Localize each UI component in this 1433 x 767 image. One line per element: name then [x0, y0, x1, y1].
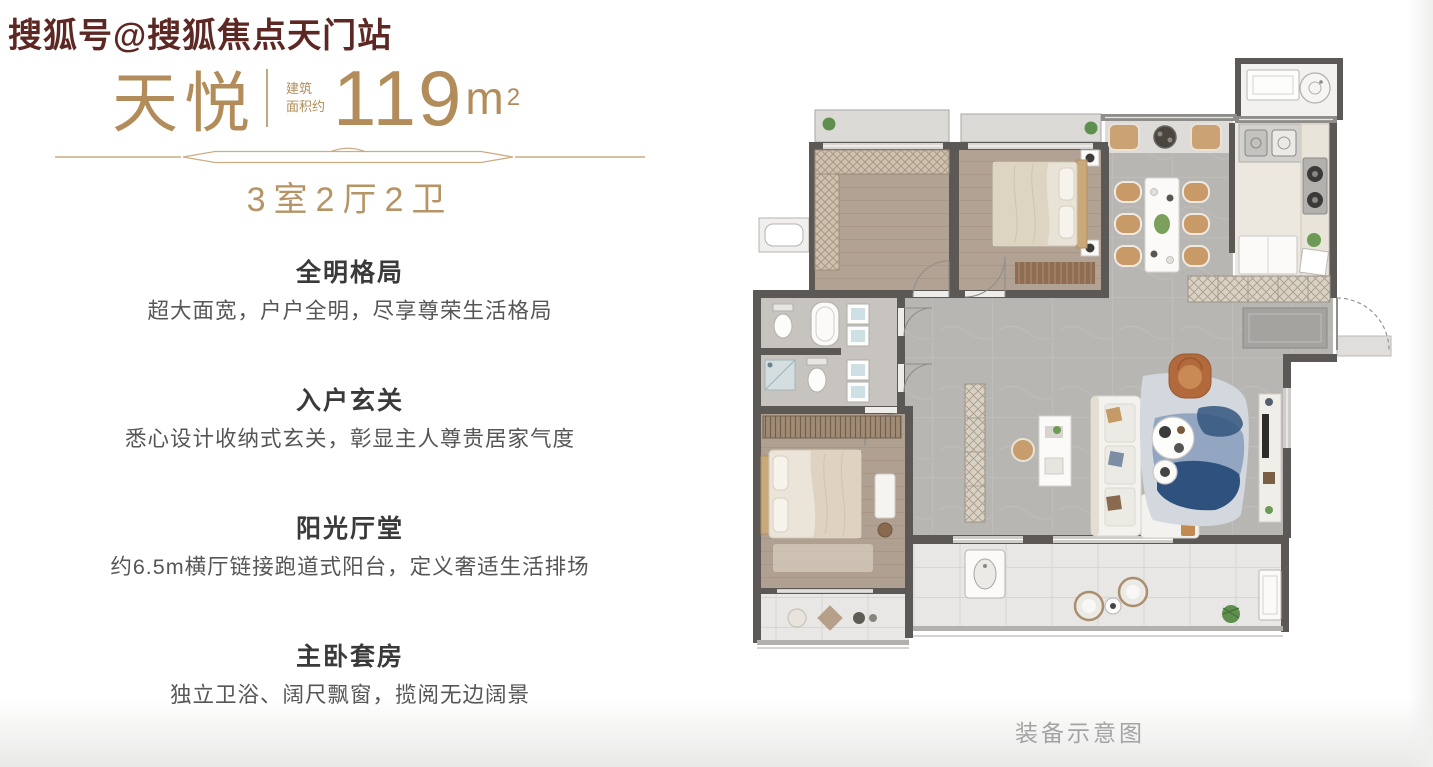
feature-title: 入户玄关	[55, 381, 645, 417]
floorplan-svg	[753, 58, 1415, 706]
feature-title: 主卧套房	[55, 637, 645, 673]
entry-mat	[1243, 308, 1327, 348]
feature-title: 全明格局	[55, 253, 645, 289]
washing-machine-icon	[1300, 73, 1330, 103]
bay-window-bedroom2	[961, 114, 1101, 142]
area-number: 119	[333, 53, 463, 144]
plan-caption: 装备示意图	[950, 714, 1210, 748]
feature-desc: 超大面宽，户户全明，尽享尊荣生活格局	[55, 298, 645, 325]
plant-icon	[1222, 605, 1240, 623]
plant-icon	[1085, 122, 1098, 135]
ac-platform	[759, 218, 809, 252]
title-divider-bar	[266, 69, 268, 127]
tv-console	[1259, 394, 1281, 522]
layout-summary: 3室2厅2卫	[55, 172, 645, 221]
feature-desc: 悉心设计收纳式玄关，彰显主人尊贵居家气度	[55, 426, 645, 453]
feature-block: 阳光厅堂 约6.5m横厅链接跑道式阳台，定义奢适生活排场	[55, 509, 645, 581]
entry-threshold	[1337, 336, 1391, 356]
feature-desc: 独立卫浴、阔尺飘窗，揽阅无边阔景	[55, 682, 645, 709]
feature-title: 阳光厅堂	[55, 509, 645, 545]
ornamental-divider	[55, 147, 645, 167]
feature-block: 主卧套房 独立卫浴、阔尺飘窗，揽阅无边阔景	[55, 637, 645, 709]
floorplan	[753, 58, 1415, 706]
plant-icon	[823, 118, 836, 131]
feature-block: 全明格局 超大面宽，户户全明，尽享尊荣生活格局	[55, 253, 645, 325]
dining-set	[1115, 178, 1209, 272]
utility-balcony	[1247, 70, 1330, 103]
hall-cabinet	[965, 384, 985, 522]
feature-list: 全明格局 超大面宽，户户全明，尽享尊荣生活格局 入户玄关 悉心设计收纳式玄关，彰…	[55, 253, 645, 765]
area-label: 建筑 面积约	[286, 80, 325, 116]
plan-name: 天悦	[112, 50, 256, 146]
tea-nook	[1109, 124, 1221, 150]
feature-desc: 约6.5m横厅链接跑道式阳台，定义奢适生活排场	[55, 554, 645, 581]
page: 搜狐号@搜狐焦点天门站 天悦 建筑 面积约 119 m 2 3室2厅2卫 全明格…	[0, 0, 1433, 767]
area-exponent: 2	[507, 84, 520, 112]
entry-cabinet	[1188, 276, 1330, 302]
area-unit: m	[465, 71, 503, 125]
feature-block: 入户玄关 悉心设计收纳式玄关，彰显主人尊贵居家气度	[55, 381, 645, 453]
accent-armchair	[1169, 354, 1211, 398]
plan-title-row: 天悦 建筑 面积约 119 m 2	[112, 56, 520, 140]
